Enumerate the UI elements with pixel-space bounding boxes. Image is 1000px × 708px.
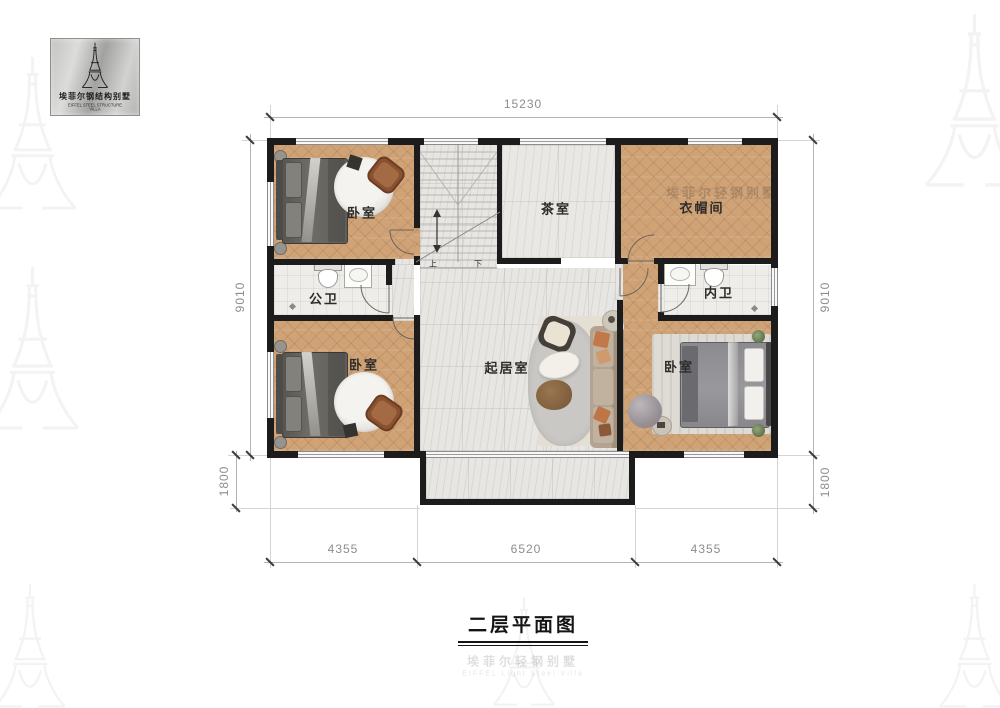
dimension-bottom-left: 4355 bbox=[328, 542, 359, 556]
floor-hall-left bbox=[392, 259, 414, 321]
floor-bath-left-door bbox=[386, 285, 392, 315]
window bbox=[771, 268, 778, 306]
room-label-bath-right: 内卫 bbox=[704, 287, 734, 300]
throw-pillow bbox=[598, 423, 612, 437]
sheet-fold bbox=[728, 342, 738, 427]
wall-tea-cloak bbox=[615, 138, 621, 264]
wall-bath-left-right bbox=[386, 315, 392, 321]
floor-corridor-right bbox=[623, 264, 658, 321]
sink bbox=[664, 262, 696, 286]
window bbox=[267, 352, 274, 418]
headboard bbox=[276, 160, 283, 240]
floor-door-gap bbox=[414, 228, 420, 256]
room-label-living: 起居室 bbox=[484, 362, 529, 375]
dimension-line-left-ext bbox=[236, 451, 237, 512]
pillow bbox=[744, 386, 764, 420]
floor-stairs bbox=[420, 145, 497, 268]
window bbox=[688, 138, 742, 145]
extension-line bbox=[270, 105, 271, 138]
bed bbox=[680, 342, 772, 426]
pillow bbox=[744, 348, 764, 382]
title-underline bbox=[458, 645, 588, 646]
coffee-table-wood bbox=[536, 380, 572, 410]
wall-cloak-bottom bbox=[615, 258, 628, 264]
sink-basin bbox=[670, 267, 690, 281]
wall-living-bedroom-br bbox=[617, 300, 623, 451]
tray bbox=[657, 422, 665, 428]
watermark-tower-icon bbox=[0, 582, 86, 708]
floor-plan-page: { "page": { "title": "二层平面图" }, "logo": … bbox=[0, 0, 1000, 708]
dimension-line-bottom bbox=[264, 562, 783, 563]
window bbox=[684, 451, 744, 458]
room-label-bedroom-tl: 卧室 bbox=[347, 207, 377, 220]
wall-bath-left-right bbox=[386, 259, 392, 285]
wall-terrace-right bbox=[629, 451, 635, 505]
watermark-tower-icon bbox=[0, 265, 85, 430]
extension-line bbox=[270, 458, 271, 568]
window bbox=[520, 138, 606, 145]
dimension-right-height: 9010 bbox=[818, 282, 832, 313]
watermark-tower-icon bbox=[912, 582, 1000, 708]
plant bbox=[752, 330, 765, 343]
floor-doorway-living bbox=[615, 264, 623, 300]
wall-stairs-left bbox=[414, 256, 420, 265]
dimension-bottom-right: 4355 bbox=[691, 542, 722, 556]
extension-line bbox=[230, 508, 420, 509]
window bbox=[424, 138, 478, 145]
bean-bag bbox=[628, 394, 662, 428]
dimension-top-width: 15230 bbox=[504, 97, 542, 111]
floor-terrace bbox=[426, 458, 629, 499]
extension-line bbox=[242, 140, 267, 141]
room-label-bedroom-br: 卧室 bbox=[664, 361, 694, 374]
room-label-cloakroom: 衣帽间 bbox=[679, 202, 724, 215]
window bbox=[298, 451, 384, 458]
seat-cushion bbox=[592, 368, 614, 406]
extension-line bbox=[417, 505, 418, 568]
floor-door-gap bbox=[628, 258, 654, 264]
dimension-line-top bbox=[264, 117, 783, 118]
page-title: 二层平面图 bbox=[458, 610, 588, 643]
headboard bbox=[276, 354, 283, 434]
floor-bath-right-door bbox=[658, 284, 664, 312]
window bbox=[267, 182, 274, 246]
floor-door-gap bbox=[395, 259, 414, 265]
extension-line bbox=[635, 508, 820, 509]
decor-item bbox=[608, 316, 615, 323]
stairs-up-label: 上 bbox=[429, 259, 437, 270]
dimension-left-ext: 1800 bbox=[217, 466, 231, 497]
wall-terrace-bottom bbox=[420, 499, 635, 505]
wall-cloak-bottom bbox=[654, 258, 775, 264]
wall-tea-bottom bbox=[497, 258, 561, 264]
logo-text-en: EIFFEL STEEL STRUCTURE VILLA bbox=[65, 104, 125, 112]
pillow bbox=[285, 396, 302, 432]
watermark-tower-icon bbox=[912, 12, 1000, 187]
wall-bath-right-bottom bbox=[658, 315, 778, 321]
pillow bbox=[285, 162, 302, 198]
throw-blanket bbox=[682, 346, 698, 422]
chair-cushion bbox=[371, 160, 401, 189]
sink-basin bbox=[349, 268, 368, 282]
toilet-bowl bbox=[318, 269, 338, 288]
pillow bbox=[285, 356, 302, 392]
room-label-tea-room: 茶室 bbox=[541, 203, 571, 216]
toilet-bowl bbox=[704, 268, 724, 287]
extension-line bbox=[777, 458, 778, 568]
toilet bbox=[700, 262, 726, 286]
dimension-left-height: 9010 bbox=[233, 282, 247, 313]
pillow bbox=[285, 202, 302, 238]
company-logo: 埃菲尔钢结构别墅 EIFFEL STEEL STRUCTURE VILLA bbox=[50, 38, 140, 116]
floor-door-gap bbox=[393, 315, 414, 321]
logo-tower-icon bbox=[74, 42, 116, 88]
sink bbox=[344, 262, 372, 288]
wall-living-left bbox=[414, 315, 420, 451]
wall-stairs-left bbox=[414, 145, 420, 228]
chair-cushion bbox=[369, 398, 398, 427]
room-label-bath-left: 公卫 bbox=[309, 293, 339, 306]
wall-bath-right-left bbox=[658, 264, 664, 284]
side-table bbox=[343, 423, 358, 438]
dimension-right-ext: 1800 bbox=[818, 467, 832, 498]
watermark-text-en: EIFFEL Light Steel Villa bbox=[462, 671, 584, 678]
dimension-line-left bbox=[250, 134, 251, 461]
wall-bedroom-bl-top bbox=[267, 315, 393, 321]
window bbox=[296, 138, 388, 145]
sheet-title-block: 二层平面图 bbox=[458, 610, 588, 646]
watermark-text-cn: 埃菲尔轻钢别墅 bbox=[467, 653, 579, 670]
room-label-bedroom-bl: 卧室 bbox=[349, 359, 379, 372]
logo-text-cn: 埃菲尔钢结构别墅 bbox=[51, 91, 139, 102]
sliding-door bbox=[426, 451, 629, 458]
extension-line bbox=[777, 105, 778, 138]
throw-pillow bbox=[593, 331, 611, 349]
plant bbox=[752, 424, 765, 437]
wall-terrace-left bbox=[420, 451, 426, 505]
dimension-bottom-center: 6520 bbox=[511, 542, 542, 556]
extension-line bbox=[635, 505, 636, 568]
wall-stairs-tea bbox=[497, 145, 502, 262]
toilet bbox=[314, 263, 340, 287]
wall-bedroom-tl-bottom bbox=[267, 259, 395, 265]
stairs-down-label: 下 bbox=[474, 259, 482, 270]
